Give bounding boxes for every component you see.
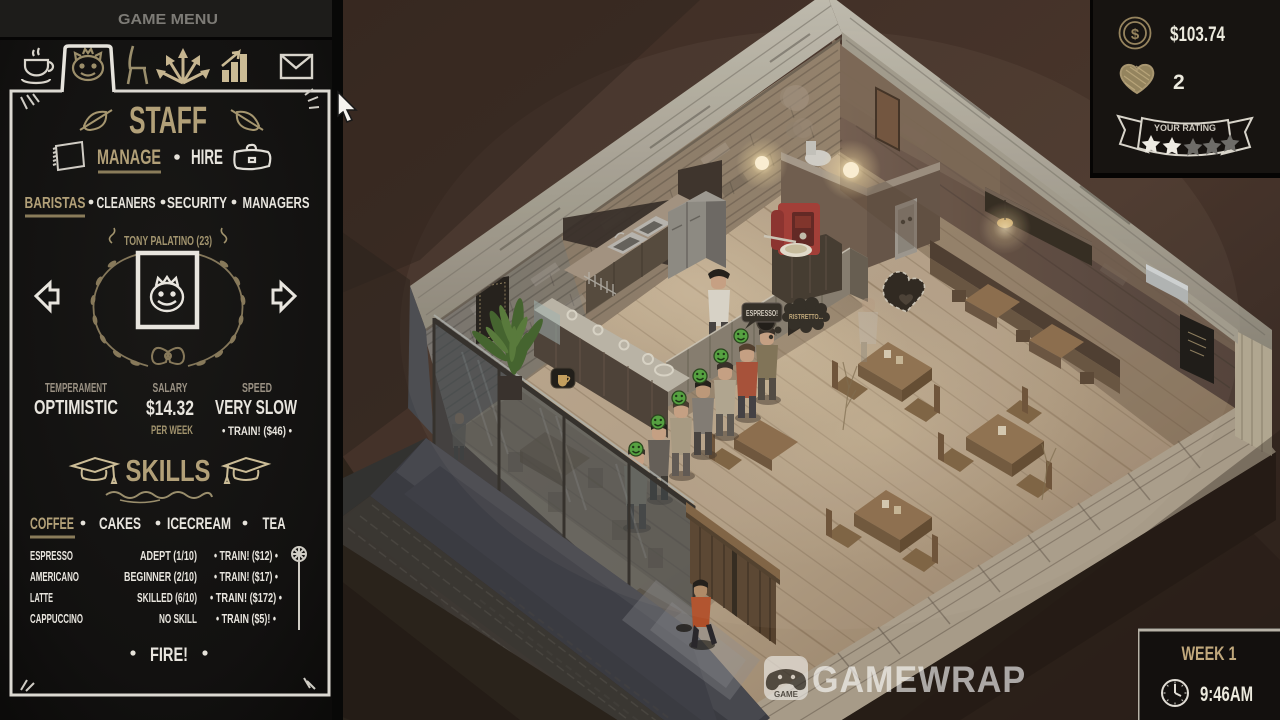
svg-text:HIRE: HIRE: [191, 146, 223, 169]
svg-text:SECURITY: SECURITY: [167, 195, 227, 212]
svg-text:9:46AM: 9:46AM: [1200, 683, 1253, 706]
svg-text:$14.32: $14.32: [146, 397, 194, 420]
svg-text:• TRAIN! ($17) •: • TRAIN! ($17) •: [214, 570, 278, 584]
svg-text:PER WEEK: PER WEEK: [151, 423, 193, 437]
svg-text:OPTIMISTIC: OPTIMISTIC: [34, 397, 118, 419]
svg-text:BARISTAS: BARISTAS: [25, 195, 86, 212]
svg-text:TEMPERAMENT: TEMPERAMENT: [45, 381, 107, 395]
svg-text:• TRAIN ($5)! •: • TRAIN ($5)! •: [216, 612, 276, 626]
svg-text:LATTE: LATTE: [30, 591, 53, 605]
svg-text:CAKES: CAKES: [99, 515, 141, 533]
svg-text:ICECREAM: ICECREAM: [167, 515, 231, 533]
svg-text:COFFEE: COFFEE: [30, 515, 74, 533]
svg-text:• TRAIN! ($46) •: • TRAIN! ($46) •: [222, 426, 292, 438]
svg-text:CLEANERS: CLEANERS: [97, 195, 156, 212]
svg-text:SALARY: SALARY: [153, 381, 188, 395]
svg-text:VERY SLOW: VERY SLOW: [215, 397, 297, 419]
svg-text:AMERICANO: AMERICANO: [30, 570, 79, 584]
svg-text:TONY PALATINO (23): TONY PALATINO (23): [124, 233, 212, 248]
svg-text:$103.74: $103.74: [1170, 23, 1225, 46]
svg-text:• TRAIN! ($172) •: • TRAIN! ($172) •: [210, 591, 282, 605]
svg-text:$: $: [1131, 26, 1140, 43]
svg-text:GAME: GAME: [774, 690, 799, 699]
svg-text:BEGINNER (2/10): BEGINNER (2/10): [124, 570, 197, 584]
svg-text:FIRE!: FIRE!: [150, 645, 188, 666]
svg-text:SKILLS: SKILLS: [126, 453, 211, 488]
svg-text:YOUR RATING: YOUR RATING: [1154, 123, 1216, 134]
svg-text:2: 2: [1173, 71, 1185, 94]
svg-text:ADEPT (1/10): ADEPT (1/10): [140, 549, 197, 563]
svg-text:TEA: TEA: [263, 515, 286, 533]
svg-text:MANAGE: MANAGE: [97, 146, 161, 169]
svg-text:CAPPUCCINO: CAPPUCCINO: [30, 612, 83, 626]
svg-text:• TRAIN! ($12) •: • TRAIN! ($12) •: [214, 549, 278, 563]
svg-text:STAFF: STAFF: [129, 100, 207, 142]
svg-text:WEEK 1: WEEK 1: [1182, 644, 1237, 665]
svg-text:ESPRESSO: ESPRESSO: [30, 549, 73, 563]
svg-text:NO SKILL: NO SKILL: [159, 612, 197, 626]
svg-text:SKILLED (6/10): SKILLED (6/10): [137, 591, 197, 605]
svg-text:SPEED: SPEED: [242, 381, 272, 395]
svg-text:GAME MENU: GAME MENU: [118, 11, 218, 28]
svg-text:MANAGERS: MANAGERS: [243, 195, 310, 212]
svg-text:GAMEWRAP: GAMEWRAP: [812, 659, 1026, 700]
